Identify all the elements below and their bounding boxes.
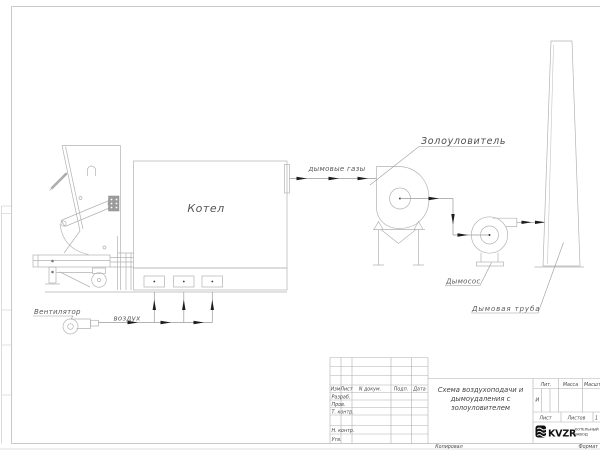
ash-catcher-label: Золоуловитель (421, 136, 506, 147)
flow-arrow (297, 177, 308, 180)
base-brace (60, 272, 90, 287)
drawing-frame (12, 7, 600, 444)
pusher-pivot-left (61, 221, 66, 226)
flow-arrow (458, 233, 469, 236)
sheets-label: Листов (567, 416, 586, 422)
hopper-outline (62, 146, 121, 291)
boiler: Котел (134, 161, 290, 290)
flow-arrow (161, 321, 172, 324)
flow-arrow (358, 177, 369, 180)
col-list: Лист (339, 387, 352, 393)
sheets-value: 1 (595, 416, 598, 422)
format-label: Формат (579, 444, 599, 450)
flow-arrow-up (211, 300, 214, 311)
engineering-drawing-sheet: Котел дымовые газы (0, 0, 600, 450)
fan-leader (33, 316, 73, 319)
sheet-label: Лист (538, 416, 551, 422)
stoker-feeder (33, 146, 287, 293)
lever-arm-edge (50, 177, 64, 191)
flow-arrow (429, 197, 440, 200)
feeder-nose (56, 253, 134, 290)
support-bolt-top (51, 260, 54, 263)
col-podp: Подп. (394, 387, 409, 393)
flow-arrow-up (153, 300, 156, 311)
doc-title-line2: дымоудаления с (450, 395, 511, 403)
fan-outlet-flange (91, 320, 99, 326)
boiler-label: Котел (187, 202, 224, 215)
drive-wheel (92, 273, 107, 288)
sheet-frame (0, 7, 600, 450)
air-inlet-dot-3 (211, 281, 213, 283)
callout-labels: Золоуловитель Дымосос Дымовая труба (370, 136, 564, 313)
air-inlet-dot-1 (153, 281, 155, 283)
flow-arrow-up (182, 300, 185, 311)
mass-label: Масса (563, 382, 578, 388)
chimney-inner-wall (548, 45, 554, 264)
brand-line2: ЗАВОД (575, 433, 588, 437)
doc-title-line1: Схема воздухоподачи и (438, 386, 524, 394)
row-tkontr: Т. контр. (332, 410, 354, 416)
grate-bolt (103, 246, 106, 249)
air-supply: Вентилятор воздух (33, 292, 214, 334)
bolt-plate (109, 196, 120, 211)
fan-label: Вентилятор (34, 308, 81, 316)
brand-line1: КОТЕЛЬНЫЙ (575, 427, 599, 432)
row-razrab: Разраб. (332, 395, 351, 401)
chimney-label: Дымовая труба (471, 305, 540, 313)
flow-arrow (329, 177, 340, 180)
lit-value: И (535, 398, 539, 404)
pusher-arm (61, 201, 113, 227)
air-inlet-dot-2 (183, 281, 185, 283)
flow-arrow (535, 221, 546, 224)
fan-circle (63, 319, 78, 334)
fan-hub (68, 324, 74, 330)
flue-gases-label: дымовые газы (308, 165, 366, 173)
flow-arrow (194, 321, 205, 324)
smoke-exhauster (471, 217, 545, 266)
row-prov: Пров. (332, 402, 346, 408)
hopper-bolt (79, 197, 82, 200)
exhauster-legs (481, 253, 498, 262)
base-platform (33, 255, 110, 267)
col-data: Дата (412, 387, 425, 393)
col-izm: Изм (331, 387, 341, 393)
drive-wheel-hub (97, 278, 100, 281)
smoke-exhauster-label: Дымосос (445, 278, 481, 286)
hopper-hook-symbol (88, 166, 96, 176)
support-bolt-bottom (51, 271, 54, 274)
air-label: воздух (114, 315, 142, 323)
cyclone-hopper-legs (373, 230, 425, 266)
front-support (49, 267, 56, 283)
title-block: Изм Лист N докум. Подп. Дата Разраб. Про… (330, 358, 600, 450)
flow-arrow-down (451, 214, 454, 225)
left-margin-cells (2, 206, 12, 444)
row-utv: Утв. (332, 437, 342, 443)
copied-label: Копировал (435, 444, 462, 450)
chimney-leader (471, 243, 564, 314)
brand-name: KVZR (548, 429, 577, 440)
base-platform-lines (33, 255, 110, 267)
doc-title-line3: золоуловителем (451, 404, 510, 412)
fan-scroll (71, 319, 91, 329)
row-nkontr: Н. контр. (332, 428, 355, 434)
ash-catcher-cyclone (373, 167, 490, 266)
exhauster-center-dot (489, 234, 491, 236)
flow-arrow (522, 221, 533, 224)
flue-gas-line: дымовые газы (290, 165, 377, 180)
chimney (535, 41, 585, 267)
ash-catcher-leader (370, 147, 501, 186)
cyclone-scroll (377, 167, 430, 229)
col-ndokum: N докум. (359, 387, 381, 393)
lit-label: Лит. (539, 382, 551, 388)
scale-label: Масштаб (584, 382, 600, 388)
brand-logo: KVZR КОТЕЛЬНЫЙ ЗАВОД (536, 426, 599, 440)
